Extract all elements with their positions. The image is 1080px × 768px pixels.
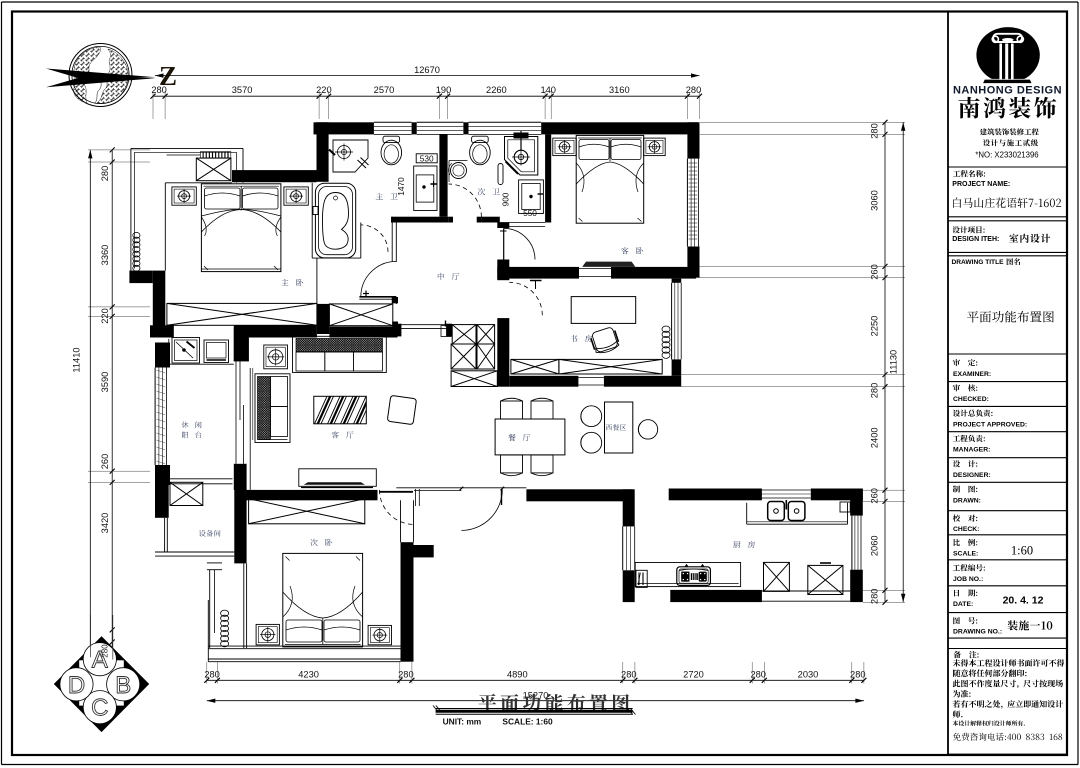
svg-text:DRAWING NO.:: DRAWING NO.: — [953, 629, 1002, 636]
svg-text:3570: 3570 — [232, 85, 253, 95]
svg-text:280: 280 — [750, 670, 766, 680]
svg-text:DESIGNER:: DESIGNER: — [953, 472, 991, 479]
svg-text:11130: 11130 — [889, 350, 899, 374]
svg-text:280: 280 — [398, 670, 414, 680]
svg-text:B: B — [115, 672, 131, 699]
svg-text:DRAWING TITLE: DRAWING TITLE — [952, 259, 1005, 266]
svg-text:3590: 3590 — [100, 372, 110, 393]
svg-text:2720: 2720 — [683, 670, 704, 680]
svg-text:1:60: 1:60 — [1011, 544, 1033, 558]
svg-text:2030: 2030 — [798, 670, 819, 680]
svg-text:2260: 2260 — [486, 85, 507, 95]
svg-text:220: 220 — [100, 308, 110, 324]
svg-text:DESIGN ITEH:: DESIGN ITEH: — [952, 236, 999, 243]
svg-text:280: 280 — [686, 85, 702, 95]
svg-text:EXAMINER:: EXAMINER: — [953, 371, 991, 378]
svg-text:DRAWN:: DRAWN: — [953, 498, 981, 505]
svg-text:2570: 2570 — [374, 85, 395, 95]
svg-text:260: 260 — [100, 454, 110, 470]
svg-text:CHECK:: CHECK: — [953, 526, 979, 533]
svg-text:PROJECT APPROVED:: PROJECT APPROVED: — [953, 421, 1027, 428]
svg-text:280: 280 — [870, 589, 880, 605]
svg-text:140: 140 — [540, 85, 556, 95]
svg-text:C: C — [91, 695, 108, 722]
svg-text:220: 220 — [316, 85, 332, 95]
svg-text:DATE:: DATE: — [953, 601, 973, 608]
svg-text:3160: 3160 — [609, 85, 630, 95]
svg-text:SCALE: 1:60: SCALE: 1:60 — [502, 717, 553, 727]
svg-text:UNIT: mm: UNIT: mm — [443, 717, 482, 727]
svg-text:3420: 3420 — [100, 513, 110, 534]
svg-text:190: 190 — [436, 85, 452, 95]
svg-text:530: 530 — [420, 153, 434, 163]
svg-text:JOB NO.:: JOB NO.: — [953, 576, 983, 583]
svg-text:CHECKED:: CHECKED: — [953, 396, 989, 403]
svg-text:SCALE:: SCALE: — [953, 551, 978, 558]
svg-text:3060: 3060 — [870, 190, 880, 211]
svg-text:280: 280 — [100, 166, 110, 182]
svg-text:4230: 4230 — [298, 670, 319, 680]
svg-text:280: 280 — [870, 383, 880, 399]
svg-text:280: 280 — [850, 670, 866, 680]
svg-text:3360: 3360 — [100, 245, 110, 266]
svg-text:*NO: X233021396: *NO: X233021396 — [975, 150, 1038, 159]
svg-text:280: 280 — [870, 123, 880, 139]
svg-text:PROJECT NAME:: PROJECT NAME: — [952, 181, 1010, 188]
svg-text:20. 4. 12: 20. 4. 12 — [1003, 595, 1044, 607]
svg-text:280: 280 — [101, 644, 110, 658]
svg-text:NANHONG DESIGN: NANHONG DESIGN — [953, 84, 1062, 96]
svg-text:2250: 2250 — [870, 316, 880, 337]
svg-text:D: D — [68, 672, 85, 699]
svg-text:12670: 12670 — [414, 65, 440, 75]
svg-text:2060: 2060 — [870, 535, 880, 556]
svg-text:2400: 2400 — [870, 427, 880, 448]
svg-text:MANAGER:: MANAGER: — [953, 447, 990, 454]
svg-text:1470: 1470 — [396, 177, 406, 196]
svg-text:280: 280 — [151, 85, 167, 95]
svg-text:280: 280 — [621, 670, 637, 680]
svg-text:4890: 4890 — [507, 670, 528, 680]
svg-text:900: 900 — [501, 192, 511, 206]
svg-text:11410: 11410 — [72, 347, 82, 372]
svg-text:550: 550 — [523, 208, 537, 218]
